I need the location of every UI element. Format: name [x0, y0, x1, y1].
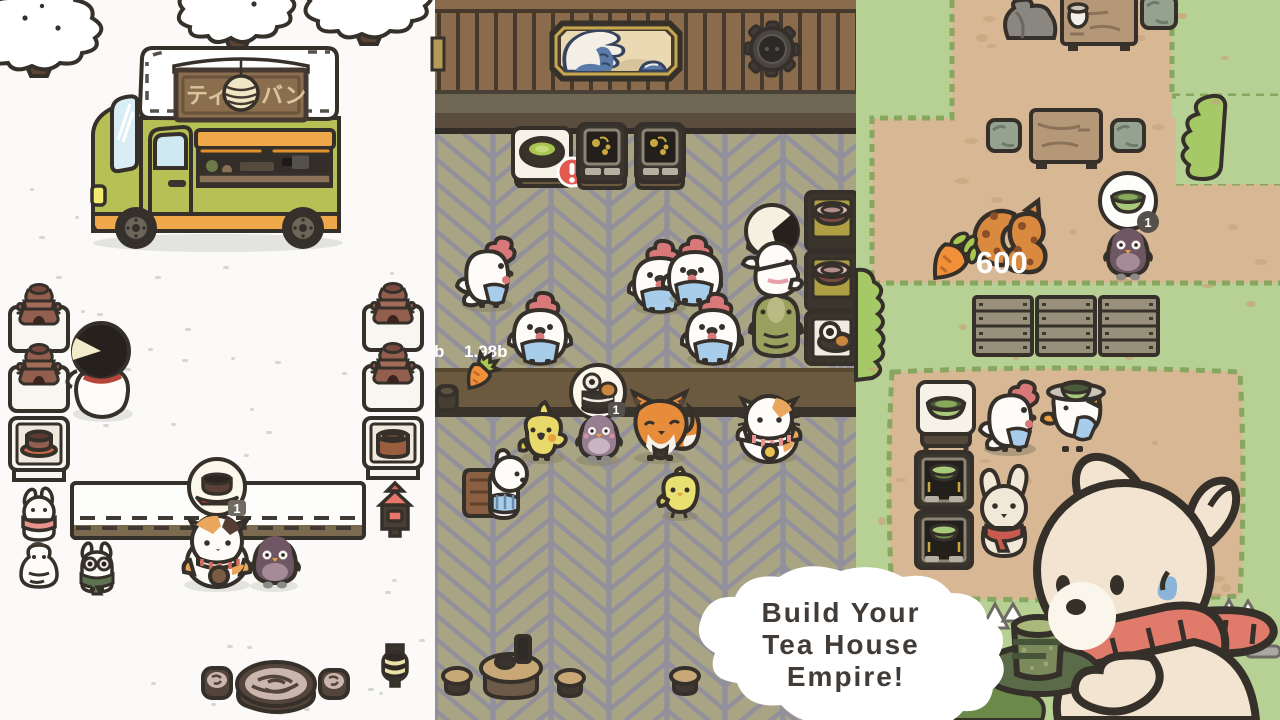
- svg-text:1: 1: [1144, 215, 1151, 230]
- svg-text:Tea House: Tea House: [762, 629, 920, 660]
- svg-text:Empire!: Empire!: [787, 661, 905, 692]
- svg-text:b: b: [434, 342, 444, 361]
- svg-text:600: 600: [976, 245, 1028, 280]
- svg-text:1: 1: [233, 501, 240, 516]
- svg-text:Build Your: Build Your: [762, 597, 921, 628]
- svg-text:バン: バン: [261, 83, 306, 108]
- svg-text:ティ: ティ: [186, 83, 229, 108]
- svg-text:1: 1: [613, 403, 620, 417]
